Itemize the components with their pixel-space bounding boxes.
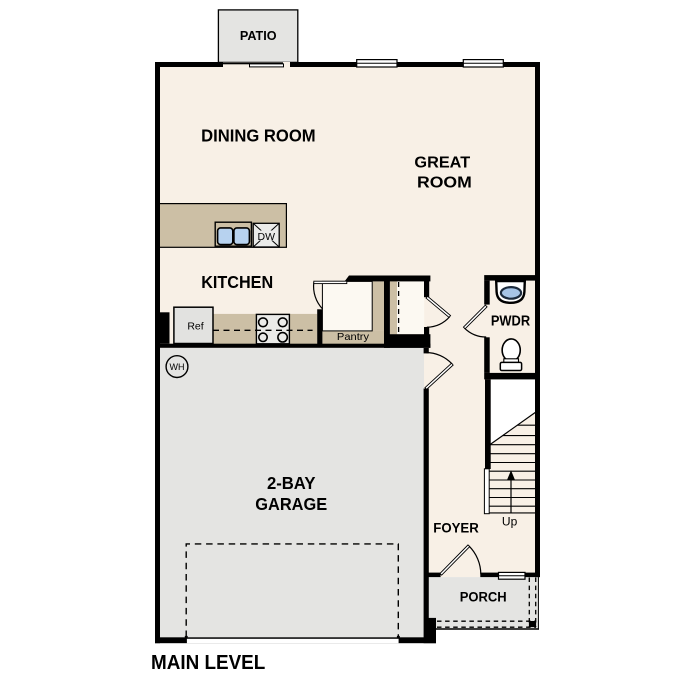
svg-text:GREAT: GREAT [414, 154, 470, 171]
svg-text:PATIO: PATIO [240, 28, 277, 43]
svg-text:GARAGE: GARAGE [255, 494, 327, 514]
svg-text:Ref: Ref [187, 321, 203, 333]
svg-text:DW: DW [258, 231, 276, 243]
svg-text:2-BAY: 2-BAY [267, 473, 316, 493]
svg-text:Pantry: Pantry [337, 331, 370, 343]
svg-text:FOYER: FOYER [433, 520, 479, 535]
svg-text:ROOM: ROOM [417, 175, 472, 192]
svg-text:PWDR: PWDR [491, 313, 531, 329]
svg-text:MAIN LEVEL: MAIN LEVEL [151, 652, 265, 674]
svg-text:PORCH: PORCH [460, 590, 507, 605]
svg-text:Up: Up [502, 514, 518, 528]
svg-text:WH: WH [170, 362, 185, 372]
svg-text:DINING ROOM: DINING ROOM [201, 125, 316, 145]
svg-text:KITCHEN: KITCHEN [201, 272, 273, 292]
